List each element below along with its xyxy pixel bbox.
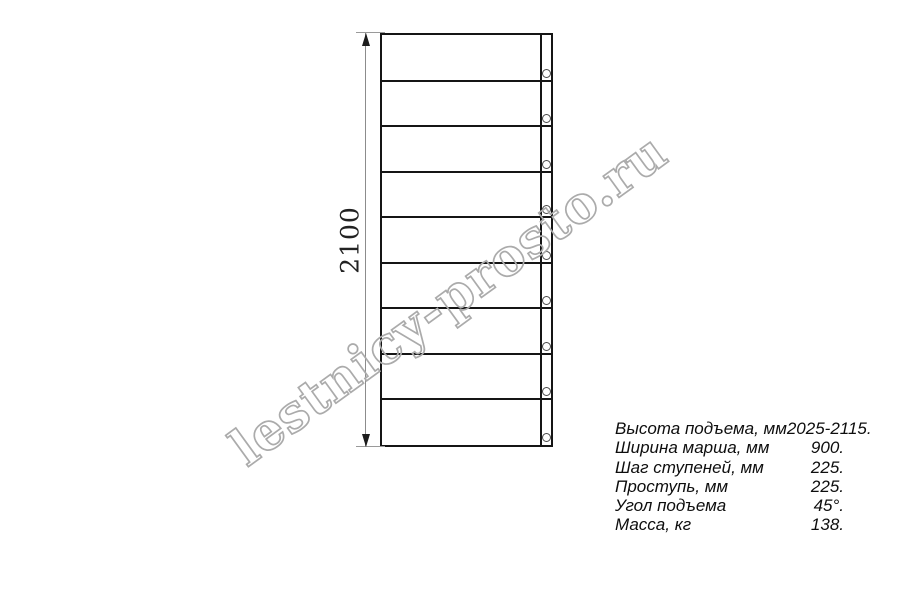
- spec-row: Высота подъема, мм2025-2115.: [615, 419, 844, 438]
- extension-line-top: [356, 32, 385, 33]
- spec-label: Ширина марша, мм: [615, 438, 769, 457]
- spec-value: 225.: [811, 477, 844, 496]
- dimension-arrow-down-icon: [362, 434, 370, 447]
- spec-value: 45°.: [814, 496, 844, 515]
- tread-line: [382, 171, 551, 173]
- tread-line: [382, 398, 551, 400]
- tread-line: [382, 80, 551, 82]
- dimension-label: 2100: [336, 206, 365, 274]
- spec-label: Масса, кг: [615, 515, 691, 534]
- bolt-hole-circle: [542, 160, 551, 169]
- spec-value: 2025-2115.: [787, 419, 872, 438]
- bolt-hole-circle: [542, 387, 551, 396]
- spec-label: Проступь, мм: [615, 477, 728, 496]
- drawing-canvas: lestnicy-prosto.ru 2100 Высота подъема, …: [0, 0, 900, 600]
- spec-label: Высота подъема, мм: [615, 419, 787, 438]
- spec-value: 225.: [811, 458, 844, 477]
- specs-table: Высота подъема, мм2025-2115.Ширина марша…: [615, 419, 844, 535]
- bolt-hole-circle: [542, 296, 551, 305]
- tread-line: [382, 125, 551, 127]
- spec-row: Проступь, мм225.: [615, 477, 844, 496]
- spec-row: Угол подъема45°.: [615, 496, 844, 515]
- extension-line-bottom: [356, 446, 385, 447]
- spec-label: Шаг ступеней, мм: [615, 458, 764, 477]
- spec-label: Угол подъема: [615, 496, 726, 515]
- spec-row: Шаг ступеней, мм225.: [615, 458, 844, 477]
- spec-row: Ширина марша, мм900.: [615, 438, 844, 457]
- bolt-hole-circle: [542, 342, 551, 351]
- spec-value: 138.: [811, 515, 844, 534]
- bolt-hole-circle: [542, 69, 551, 78]
- spec-value: 900.: [811, 438, 844, 457]
- spec-row: Масса, кг138.: [615, 515, 844, 534]
- bolt-hole-circle: [542, 114, 551, 123]
- dimension-arrow-up-icon: [362, 33, 370, 46]
- bolt-hole-circle: [542, 433, 551, 442]
